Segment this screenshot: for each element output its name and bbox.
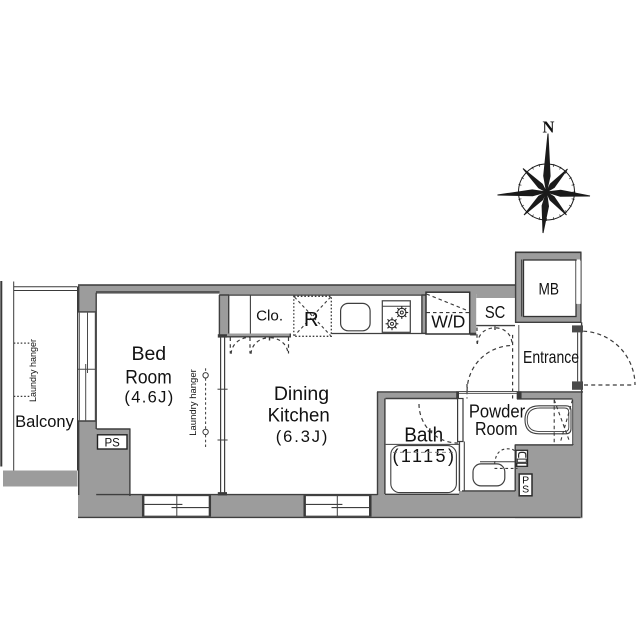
svg-text:PS: PS	[105, 437, 121, 449]
svg-text:N: N	[543, 118, 555, 137]
svg-text:(1115): (1115)	[392, 446, 454, 466]
svg-text:Clo.: Clo.	[256, 308, 283, 325]
svg-text:Entrance: Entrance	[523, 347, 579, 367]
svg-text:W/D: W/D	[431, 312, 465, 332]
svg-text:Laundry hanger: Laundry hanger	[28, 339, 38, 402]
svg-text:(6.3J): (6.3J)	[276, 428, 328, 446]
svg-text:(4.6J): (4.6J)	[124, 389, 173, 407]
svg-text:Dining: Dining	[274, 383, 329, 405]
svg-text:S: S	[522, 483, 529, 495]
svg-text:Bed: Bed	[131, 343, 166, 365]
svg-text:Bath: Bath	[404, 425, 443, 447]
svg-text:Room: Room	[125, 367, 172, 389]
svg-text:MB: MB	[539, 281, 560, 299]
svg-text:SC: SC	[485, 302, 506, 322]
svg-text:Room: Room	[475, 418, 518, 439]
svg-text:Kitchen: Kitchen	[268, 405, 330, 427]
svg-text:Balcony: Balcony	[15, 413, 74, 431]
svg-text:Laundry hanger: Laundry hanger	[188, 369, 199, 436]
svg-text:R: R	[304, 308, 319, 331]
